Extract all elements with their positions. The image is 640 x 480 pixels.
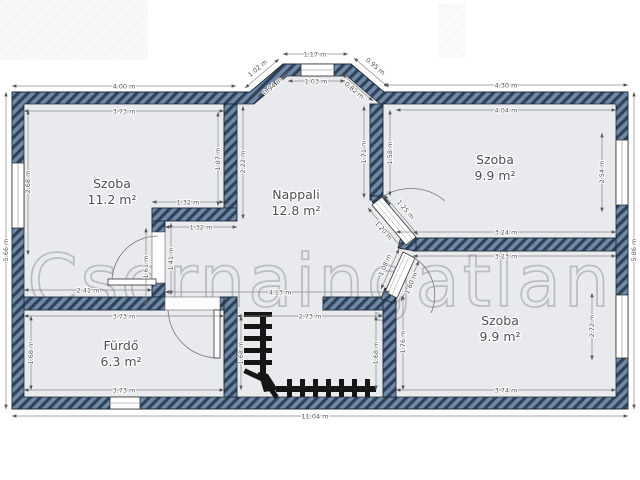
dim-label: 1.76 m (399, 331, 407, 354)
dim-label: 3.24 m (495, 228, 518, 236)
dim-label: 1.68 m (27, 342, 35, 365)
dim-label: 1.71 m (360, 141, 368, 164)
dim-label: 1.32 m (177, 198, 200, 206)
dim-label: 2.22 m (239, 151, 247, 174)
dim-label: 1.68 m (372, 342, 380, 365)
dim-label: 1.02 m (246, 58, 269, 79)
door-leaf-nw (108, 279, 156, 285)
room-area-furdo: 6.3 m² (100, 354, 141, 369)
door-leaf-bathroom (214, 310, 220, 358)
dim-label: 1.68 m (237, 342, 245, 365)
dim-label: 3.23 m (495, 252, 518, 260)
room-name-szoba-se: Szoba (481, 313, 519, 328)
door-opening-nw (152, 232, 165, 283)
dim-label: 1.61 m (142, 256, 150, 279)
dim-label: 1.03 m (305, 77, 328, 85)
room-name-szoba-ne: Szoba (476, 152, 514, 167)
dim-label: 3.74 m (495, 386, 518, 394)
dim-label: 2.54 m (598, 161, 606, 184)
faint-watermark-patch (0, 0, 148, 60)
room-area-szoba-se: 9.9 m² (479, 329, 520, 344)
dim-label: 11.04 m (301, 412, 328, 420)
dim-label: 3.73 m (113, 386, 136, 394)
dim-label: 4.13 m (269, 288, 292, 296)
dim-label: 3.73 m (113, 312, 136, 320)
dim-label: 4.04 m (495, 106, 518, 114)
room-name-nappali: Nappali (272, 187, 320, 202)
door-opening-bathroom (165, 297, 220, 310)
room-name-szoba-nw: Szoba (93, 176, 131, 191)
dim-label: 2.41 m (77, 286, 100, 294)
dim-label: 2.73 m (299, 312, 322, 320)
dim-label: 5.66 m (2, 239, 10, 262)
dim-label: 5.86 m (630, 239, 638, 262)
dim-label: 1.41 m (167, 248, 175, 271)
room-area-szoba-ne: 9.9 m² (474, 168, 515, 183)
dim-label: 0.95 m (364, 56, 387, 77)
dim-label: 1.87 m (214, 148, 222, 171)
dim-label: 1.32 m (190, 223, 213, 231)
floor-plan-page: Csornaingatlan (0, 0, 640, 480)
dim-label: 1.17 m (304, 50, 327, 58)
faint-watermark-patch (438, 4, 466, 58)
dim-label: 4.00 m (113, 82, 136, 90)
dim-label: 1.58 m (386, 142, 394, 165)
floor-plan-drawing: Csornaingatlan (0, 0, 640, 480)
dim-label: 4.30 m (495, 81, 518, 89)
room-name-furdo: Fürdő (104, 338, 139, 353)
room-area-szoba-nw: 11.2 m² (88, 192, 137, 207)
room-area-nappali: 12.8 m² (272, 203, 321, 218)
dim-label: 2.68 m (24, 171, 32, 194)
dim-label: 3.73 m (113, 107, 136, 115)
dim-label: 2.72 m (588, 315, 596, 338)
